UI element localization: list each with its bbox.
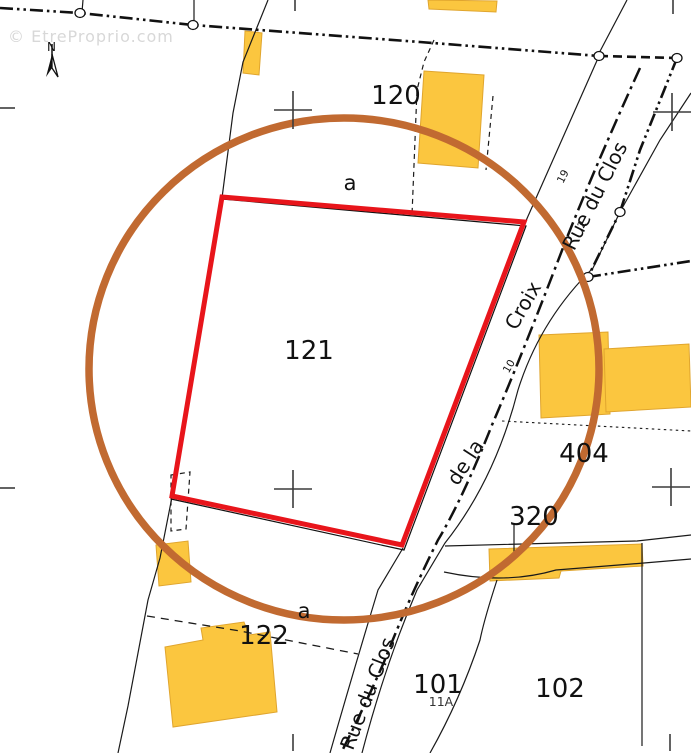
parcel-121-boundary bbox=[171, 199, 526, 550]
parcel-boundary bbox=[445, 535, 691, 546]
street-label-de-la: de la bbox=[442, 435, 489, 489]
address-label-19: 19 bbox=[555, 168, 572, 185]
grid-cross bbox=[652, 468, 690, 506]
boundary-node bbox=[188, 21, 198, 30]
grid-cross bbox=[274, 470, 312, 508]
cadastral-map: 120 121 122 404 320 101 102 11A a a Rue … bbox=[0, 0, 691, 753]
parcel-boundary bbox=[118, 497, 172, 753]
parcel-label-404: 404 bbox=[559, 439, 609, 469]
address-label-10: 10 bbox=[501, 358, 518, 376]
street-label-rue-du-clos-upper: Rue du Clos bbox=[557, 138, 632, 254]
parcel-label-122: 122 bbox=[239, 621, 289, 651]
building bbox=[428, 0, 497, 12]
commune-boundary bbox=[599, 56, 677, 58]
watermark: © EtreProprio.com bbox=[8, 27, 174, 46]
north-arrow-needle-right bbox=[52, 54, 58, 77]
street-label-croix: Croix bbox=[500, 277, 547, 334]
subdivision-label-a-bottom: a bbox=[298, 599, 311, 623]
commune-boundary bbox=[588, 261, 691, 277]
parcel-label-102: 102 bbox=[535, 674, 585, 704]
boundary-node bbox=[594, 52, 604, 61]
road-west-edge bbox=[597, 0, 627, 57]
north-arrow-needle-left bbox=[46, 54, 52, 77]
parcel-label-320: 320 bbox=[509, 502, 559, 532]
parcel-label-120: 120 bbox=[371, 81, 421, 111]
address-label-11A: 11A bbox=[429, 694, 454, 709]
building bbox=[604, 344, 691, 412]
boundary-node bbox=[615, 208, 625, 217]
boundary-node bbox=[75, 9, 85, 18]
subdivision-label-a-top: a bbox=[344, 171, 357, 195]
buildings-layer bbox=[156, 0, 691, 727]
boundary-node bbox=[672, 54, 682, 63]
boundary-nodes bbox=[75, 9, 682, 282]
map-canvas: 120 121 122 404 320 101 102 11A a a Rue … bbox=[0, 0, 691, 753]
grid-cross bbox=[653, 93, 691, 131]
parcel-label-121: 121 bbox=[284, 336, 334, 366]
parcel-boundary bbox=[430, 580, 497, 753]
